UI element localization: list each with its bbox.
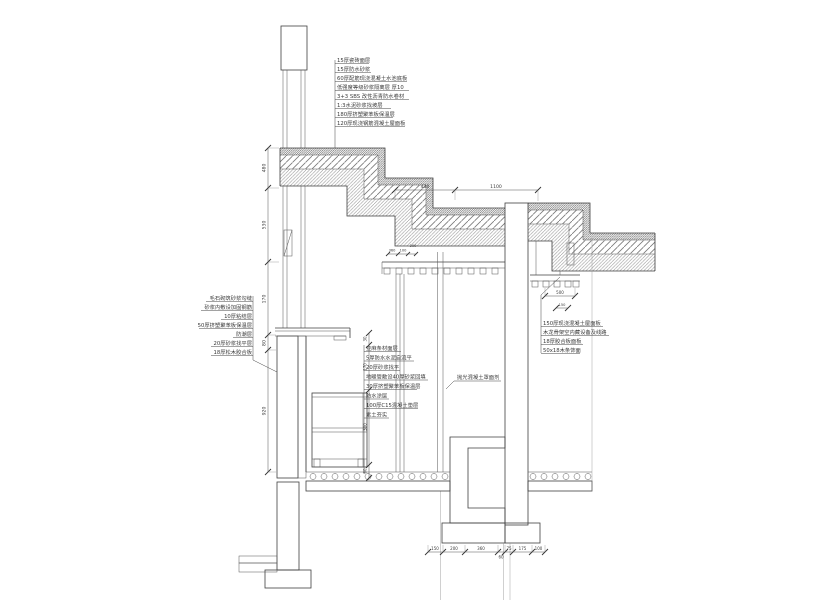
dim-bottom-0: 150 [431,546,439,551]
dim-left-3: 80 [262,340,268,346]
roof-layer-label-5: 1:3水泥砂浆找坡层 [337,101,383,109]
roof-assembly-left [280,148,505,246]
dim-middle-2: 300 [363,423,368,431]
floor-layer-label-4: 30厚挤塑聚苯板保温层 [366,382,420,390]
dim-left-0: 480 [262,164,268,173]
dim-left-4: 920 [262,407,268,416]
dim-left-1: 530 [262,221,268,230]
dim-top-1: 1100 [490,184,502,190]
roof-layer-label-0: 15厚瓷砖面层 [337,56,370,64]
cabinet [312,393,367,467]
floor-right [528,238,592,491]
roof-assembly-right [528,203,655,271]
label-wall-finish: 抛光混凝土罩面剂 [446,373,501,389]
right-ceiling-label-3: 50x18木条饰面 [543,346,581,354]
dim-top-0: 430 [421,184,430,190]
dim-bottom-6: 100 [535,546,543,551]
structural-wall [442,203,540,600]
dim-middle-3: 60 [363,468,368,474]
dim-window-1: 100 [400,249,408,253]
roof-layer-label-7: 120厚现浇钢筋混凝土屋面板 [337,119,406,127]
detail-drawing-svg: 15厚瓷砖面层 15厚防水砂浆 60厚配筋现浇混凝土水池底板 低强度等级砂浆隔离… [0,0,818,614]
roof-layer-label-4: 3+3 SBS 改性沥青防水卷材 [337,92,405,100]
dim-bottom-5: 175 [519,546,527,551]
dim-bottom-1: 200 [450,546,458,551]
dimension-right-ceiling: 500 150 [542,288,578,311]
label-block-left-wall: 毛石砌筑砂浆勾缝 砂浆内敷设加固钢筋 10厚粘结层 50厚挤塑聚苯板保温层 防潮… [198,294,277,372]
right-ceiling-label-2: 18厚胶合板面板 [543,337,582,345]
floor-layer-label-0: 亚麻条材面层 [366,344,398,352]
parapet-wall [281,26,307,148]
floor-layer-label-2: 20厚砂浆找平 [366,363,400,371]
floor-layer-label-6: 100厚C15混凝土垫层 [366,401,418,409]
roof-layer-label-3: 低强度等级砂浆隔离层 厚10 [337,83,404,91]
countertop [275,328,350,340]
dim-bottom-4: 75 [506,546,512,551]
label-block-roof-layers: 15厚瓷砖面层 15厚防水砂浆 60厚配筋现浇混凝土水池底板 低强度等级砂浆隔离… [335,56,409,148]
dim-right-ceiling-0: 500 [556,290,564,295]
dim-right-ceiling-1: 150 [559,303,567,307]
left-wall-label-0: 毛石砌筑砂浆勾缝 [210,294,253,302]
floor-left [306,472,450,491]
floor-layer-label-3: 地暖管敷设40厚砂浆回填 [366,373,426,381]
left-wall-label-1: 砂浆内敷设加固钢筋 [204,303,252,311]
dim-bottom-2: 360 [477,546,485,551]
dim-middle-1: 170 [363,363,368,371]
dim-window-0: 360 [389,249,397,253]
ceiling-left [382,262,505,274]
dim-bottom-3: 60 [498,555,504,560]
dimension-left-chain: 480 530 170 80 920 [262,145,280,475]
floor-layer-label-1: 5厚防水水泥自流平 [366,354,412,362]
roof-layer-label-2: 60厚配筋现浇混凝土水池底板 [337,74,408,82]
stone-veneer-wall [239,186,311,588]
left-wall-label-4: 防潮层 [236,330,252,338]
left-wall-label-2: 10厚粘结层 [224,312,252,320]
right-ceiling-label-1: 木龙骨架空内藏设备及线路 [543,328,607,336]
left-wall-label-5: 20厚砂浆找平层 [213,339,252,347]
roof-layer-label-6: 180厚挤塑聚苯板保温层 [337,110,395,118]
detail-drawing-page: 15厚瓷砖面层 15厚防水砂浆 60厚配筋现浇混凝土水池底板 低强度等级砂浆隔离… [0,0,818,614]
dim-left-2: 170 [262,295,268,304]
right-ceiling-label-0: 150厚现浇混凝土屋面板 [543,319,601,327]
dim-middle-0: 30 [363,336,368,342]
left-wall-label-6: 18厚松木胶合板 [213,348,252,356]
left-wall-label-3: 50厚挤塑聚苯板保温层 [198,321,252,329]
service-trench [450,437,505,523]
dim-window-2: 200 [410,244,418,248]
dimension-bottom-chain: 150 200 360 60 75 175 100 [425,545,548,560]
roof-layer-label-1: 15厚防水砂浆 [337,65,371,73]
wall-finish-label: 抛光混凝土罩面剂 [457,373,499,381]
